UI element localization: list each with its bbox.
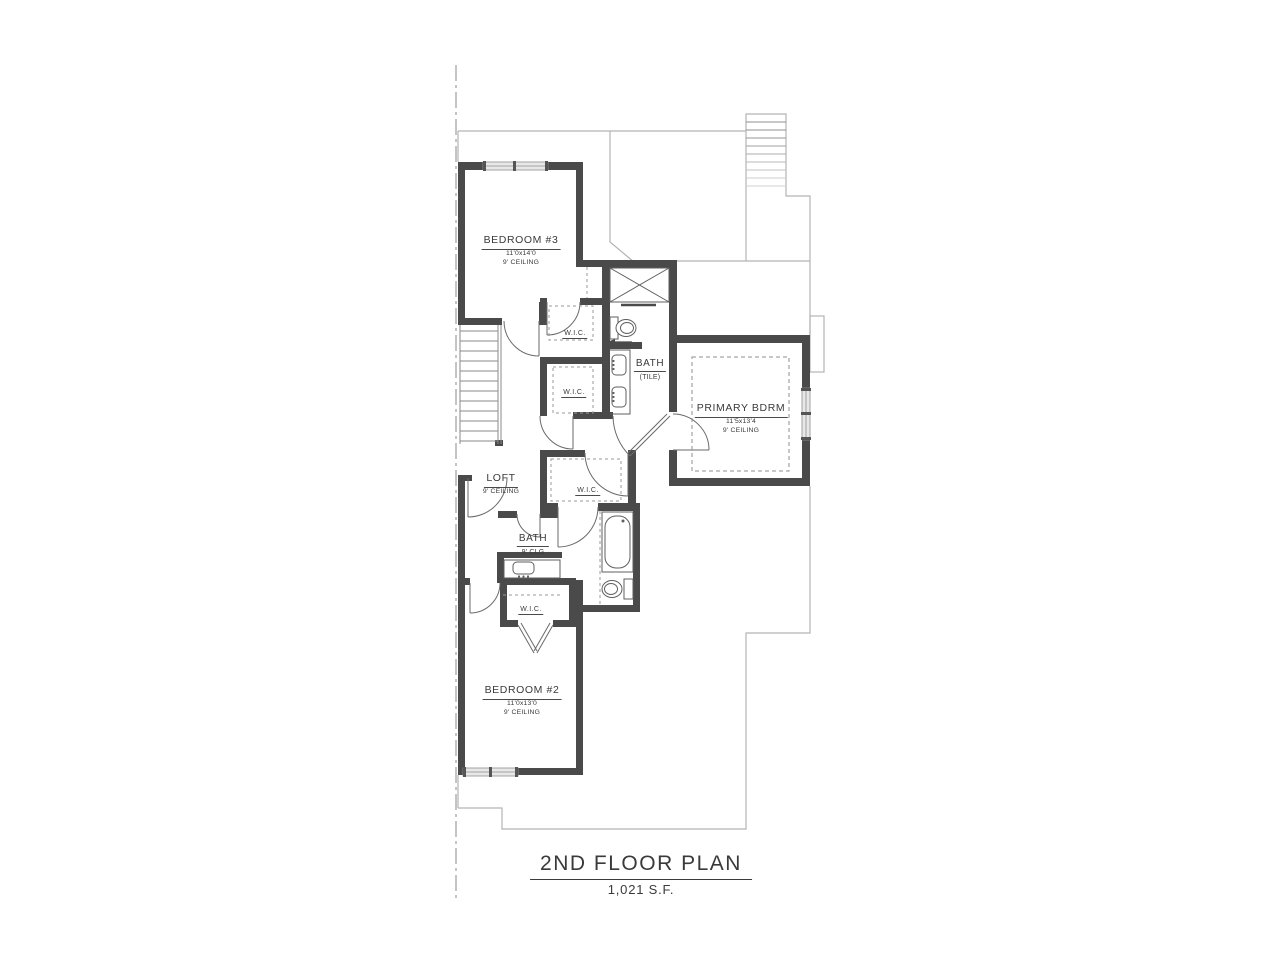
- bedroom2-window: [463, 767, 518, 777]
- room-ceiling: 9' CEILING: [695, 427, 788, 436]
- wic-label-3: W.I.C.: [575, 478, 600, 499]
- room-name: BEDROOM #3: [482, 234, 561, 250]
- room-name: PRIMARY BDRM: [695, 402, 788, 418]
- bedroom3-window: [483, 161, 548, 171]
- bathtub-fixture: [602, 512, 633, 572]
- room-name: BATH: [517, 532, 549, 547]
- shower-fixture: [610, 268, 669, 305]
- primary-window: [801, 388, 811, 440]
- bedroom2-door: [470, 583, 500, 613]
- room-label-bedroom2: BEDROOM #2 11'0x13'0 9' CEILING: [483, 679, 562, 717]
- wic-label-4: W.I.C.: [518, 597, 543, 618]
- room-name: BATH: [634, 357, 666, 372]
- exterior-stairs: [746, 122, 786, 186]
- vanity-hall-bath: [504, 560, 560, 578]
- room-label-primary: PRIMARY BDRM 11'5x13'4 9' CEILING: [695, 397, 788, 435]
- plan-area: 1,021 S.F.: [530, 882, 752, 897]
- room-label-bath-tile: BATH (TILE): [634, 352, 666, 382]
- plan-title: 2ND FLOOR PLAN: [530, 852, 752, 880]
- room-ceiling: 9' CEILING: [483, 488, 519, 497]
- bedroom3-door: [504, 321, 539, 356]
- floor-plan-drawing: [0, 0, 1280, 960]
- floor-plan-canvas: BEDROOM #3 11'0x14'0 9' CEILING PRIMARY …: [0, 0, 1280, 960]
- double-vanity-bath-tile: [610, 350, 630, 414]
- closet-name: W.I.C.: [562, 329, 587, 339]
- room-label-loft: LOFT 9' CEILING: [483, 467, 519, 497]
- room-note: (TILE): [634, 373, 666, 382]
- room-label-bedroom3: BEDROOM #3 11'0x14'0 9' CEILING: [482, 229, 561, 267]
- interior-stairs: [460, 325, 501, 444]
- room-label-bath-hall: BATH 9' CLG: [517, 527, 549, 557]
- window-seat-bumpout: [810, 316, 824, 372]
- room-dims: 11'0x13'0: [483, 700, 562, 709]
- closet-name: W.I.C.: [561, 388, 586, 398]
- closet-name: W.I.C.: [518, 605, 543, 615]
- toilet-bath-tile: [607, 317, 636, 345]
- room-name: LOFT: [484, 472, 517, 488]
- room-ceiling: 9' CEILING: [482, 259, 561, 268]
- tub-faucet: [622, 520, 625, 523]
- room-dims: 11'0x14'0: [482, 250, 561, 259]
- hall-bath-door: [558, 507, 598, 547]
- toilet-hall-bath: [602, 579, 633, 599]
- wic4-double-doors: [518, 623, 553, 653]
- wic2-door: [540, 416, 573, 449]
- room-dims: 11'5x13'4: [695, 418, 788, 427]
- room-ceiling: 9' CEILING: [483, 709, 562, 718]
- room-note: 9' CLG: [517, 548, 549, 557]
- closet-name: W.I.C.: [575, 486, 600, 496]
- bath-tile-door: [613, 414, 670, 456]
- title-block: 2ND FLOOR PLAN 1,021 S.F.: [530, 852, 752, 897]
- wic-label-2: W.I.C.: [561, 380, 586, 401]
- room-name: BEDROOM #2: [483, 684, 562, 700]
- wic-label-1: W.I.C.: [562, 321, 587, 342]
